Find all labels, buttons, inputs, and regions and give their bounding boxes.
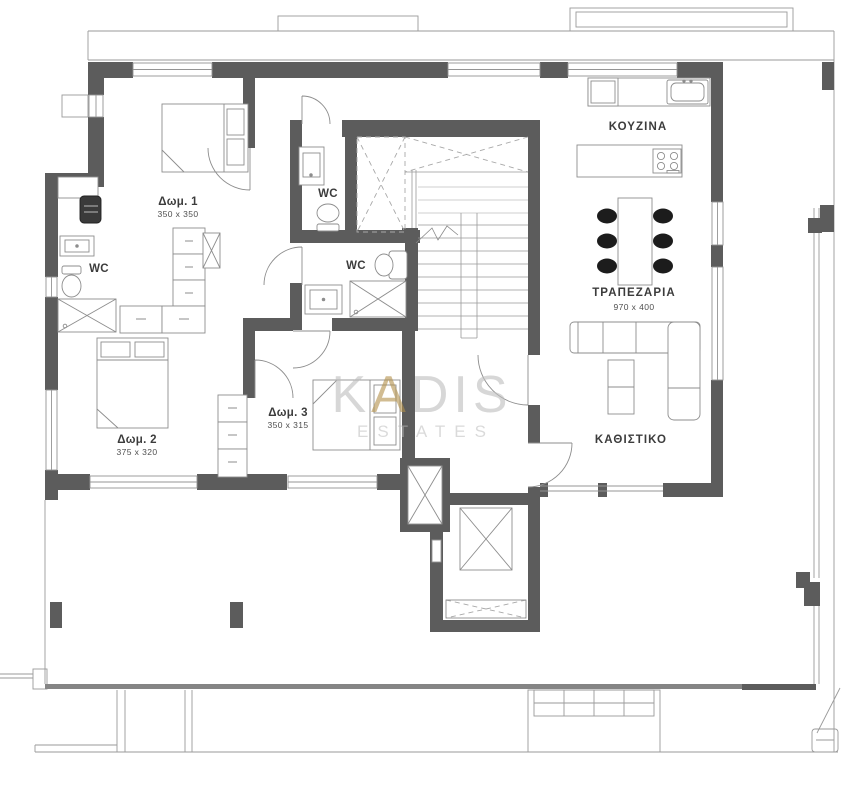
balcony-pillar xyxy=(820,205,834,232)
door-arc-bedroom2 xyxy=(255,360,293,398)
label-wc-left: WC xyxy=(89,263,109,275)
watermark-subtitle: ESTATES xyxy=(357,422,495,441)
watermark-gold-letter: A xyxy=(371,366,411,424)
shower-icon-wc-left xyxy=(58,299,116,332)
wardrobe-icon xyxy=(120,228,220,333)
watermark: KADIS ESTATES xyxy=(331,366,512,441)
door-arc-entrance xyxy=(528,443,572,487)
chair-icon xyxy=(653,234,673,249)
label-bedroom1: Δωμ. 1 xyxy=(158,196,198,208)
bed-icon-bedroom2 xyxy=(97,338,168,428)
coffee-table-icon xyxy=(608,360,634,414)
wardrobe-icon xyxy=(218,395,247,477)
chair-icon xyxy=(653,209,673,224)
roof-planter-right xyxy=(570,8,793,31)
balcony-pillar xyxy=(822,62,834,90)
label-wc-mid: WC xyxy=(346,260,366,272)
balcony-railing-right xyxy=(814,208,819,684)
kitchen-sink-icon xyxy=(667,80,708,104)
watermark-title: KADIS xyxy=(331,366,512,424)
roof-planter-left xyxy=(278,16,418,31)
toilet-icon-wc-top xyxy=(317,204,339,231)
pillow xyxy=(227,139,244,165)
kitchen-island-icon xyxy=(577,145,682,177)
toilet-icon-wc-left xyxy=(62,266,81,297)
label-dining: ΤΡΑΠΕΖΑΡΙΑ xyxy=(592,287,676,299)
washing-machine-icon xyxy=(80,196,101,223)
dims-bedroom2: 375 x 320 xyxy=(117,447,158,457)
sink-icon-wc-left xyxy=(60,236,94,256)
elevator-door xyxy=(432,540,441,562)
door-arc-wc-mid xyxy=(264,247,302,285)
chair-icon xyxy=(597,259,617,274)
bed-icon-bedroom1 xyxy=(162,104,248,172)
window-sill xyxy=(62,95,88,117)
dining-table-icon xyxy=(618,198,652,285)
sink-icon-wc-mid xyxy=(305,285,342,314)
sofa-icon xyxy=(570,322,700,420)
dims-bedroom3: 350 x 315 xyxy=(268,420,309,430)
terrace-column xyxy=(230,602,243,628)
pillow xyxy=(135,342,164,357)
stairs-icon xyxy=(405,170,528,338)
door-arc-bedroom3 xyxy=(293,331,330,368)
laundry-counter xyxy=(58,177,98,198)
sink-icon-wc-top xyxy=(299,147,324,185)
stair-break-line xyxy=(416,226,458,243)
lower-level-outline xyxy=(35,745,838,752)
chair-icon xyxy=(653,259,673,274)
door-arc-wc-top xyxy=(302,96,330,124)
label-bedroom3: Δωμ. 3 xyxy=(268,407,308,419)
label-bedroom2: Δωμ. 2 xyxy=(117,434,157,446)
label-living: ΚΑΘΙΣΤΙΚΟ xyxy=(595,434,667,446)
shower-icon-wc-mid xyxy=(350,281,406,317)
terrace-column xyxy=(50,602,62,628)
dims-bedroom1: 350 x 350 xyxy=(158,209,199,219)
pillow xyxy=(227,109,244,135)
chair-icon xyxy=(597,234,617,249)
pillow xyxy=(101,342,130,357)
terrace-parapet xyxy=(45,684,816,689)
label-kitchen: ΚΟΥΖΙΝΑ xyxy=(609,121,668,133)
hob-icon xyxy=(653,149,681,173)
toilet-icon-wc-mid xyxy=(375,251,407,279)
label-wc-top: WC xyxy=(318,188,338,200)
chair-icon xyxy=(597,209,617,224)
dims-dining: 970 x 400 xyxy=(614,302,655,312)
floor-plan: Δωμ. 1 350 x 350 WC WC WC Δωμ. 2 375 x 3… xyxy=(0,0,861,796)
